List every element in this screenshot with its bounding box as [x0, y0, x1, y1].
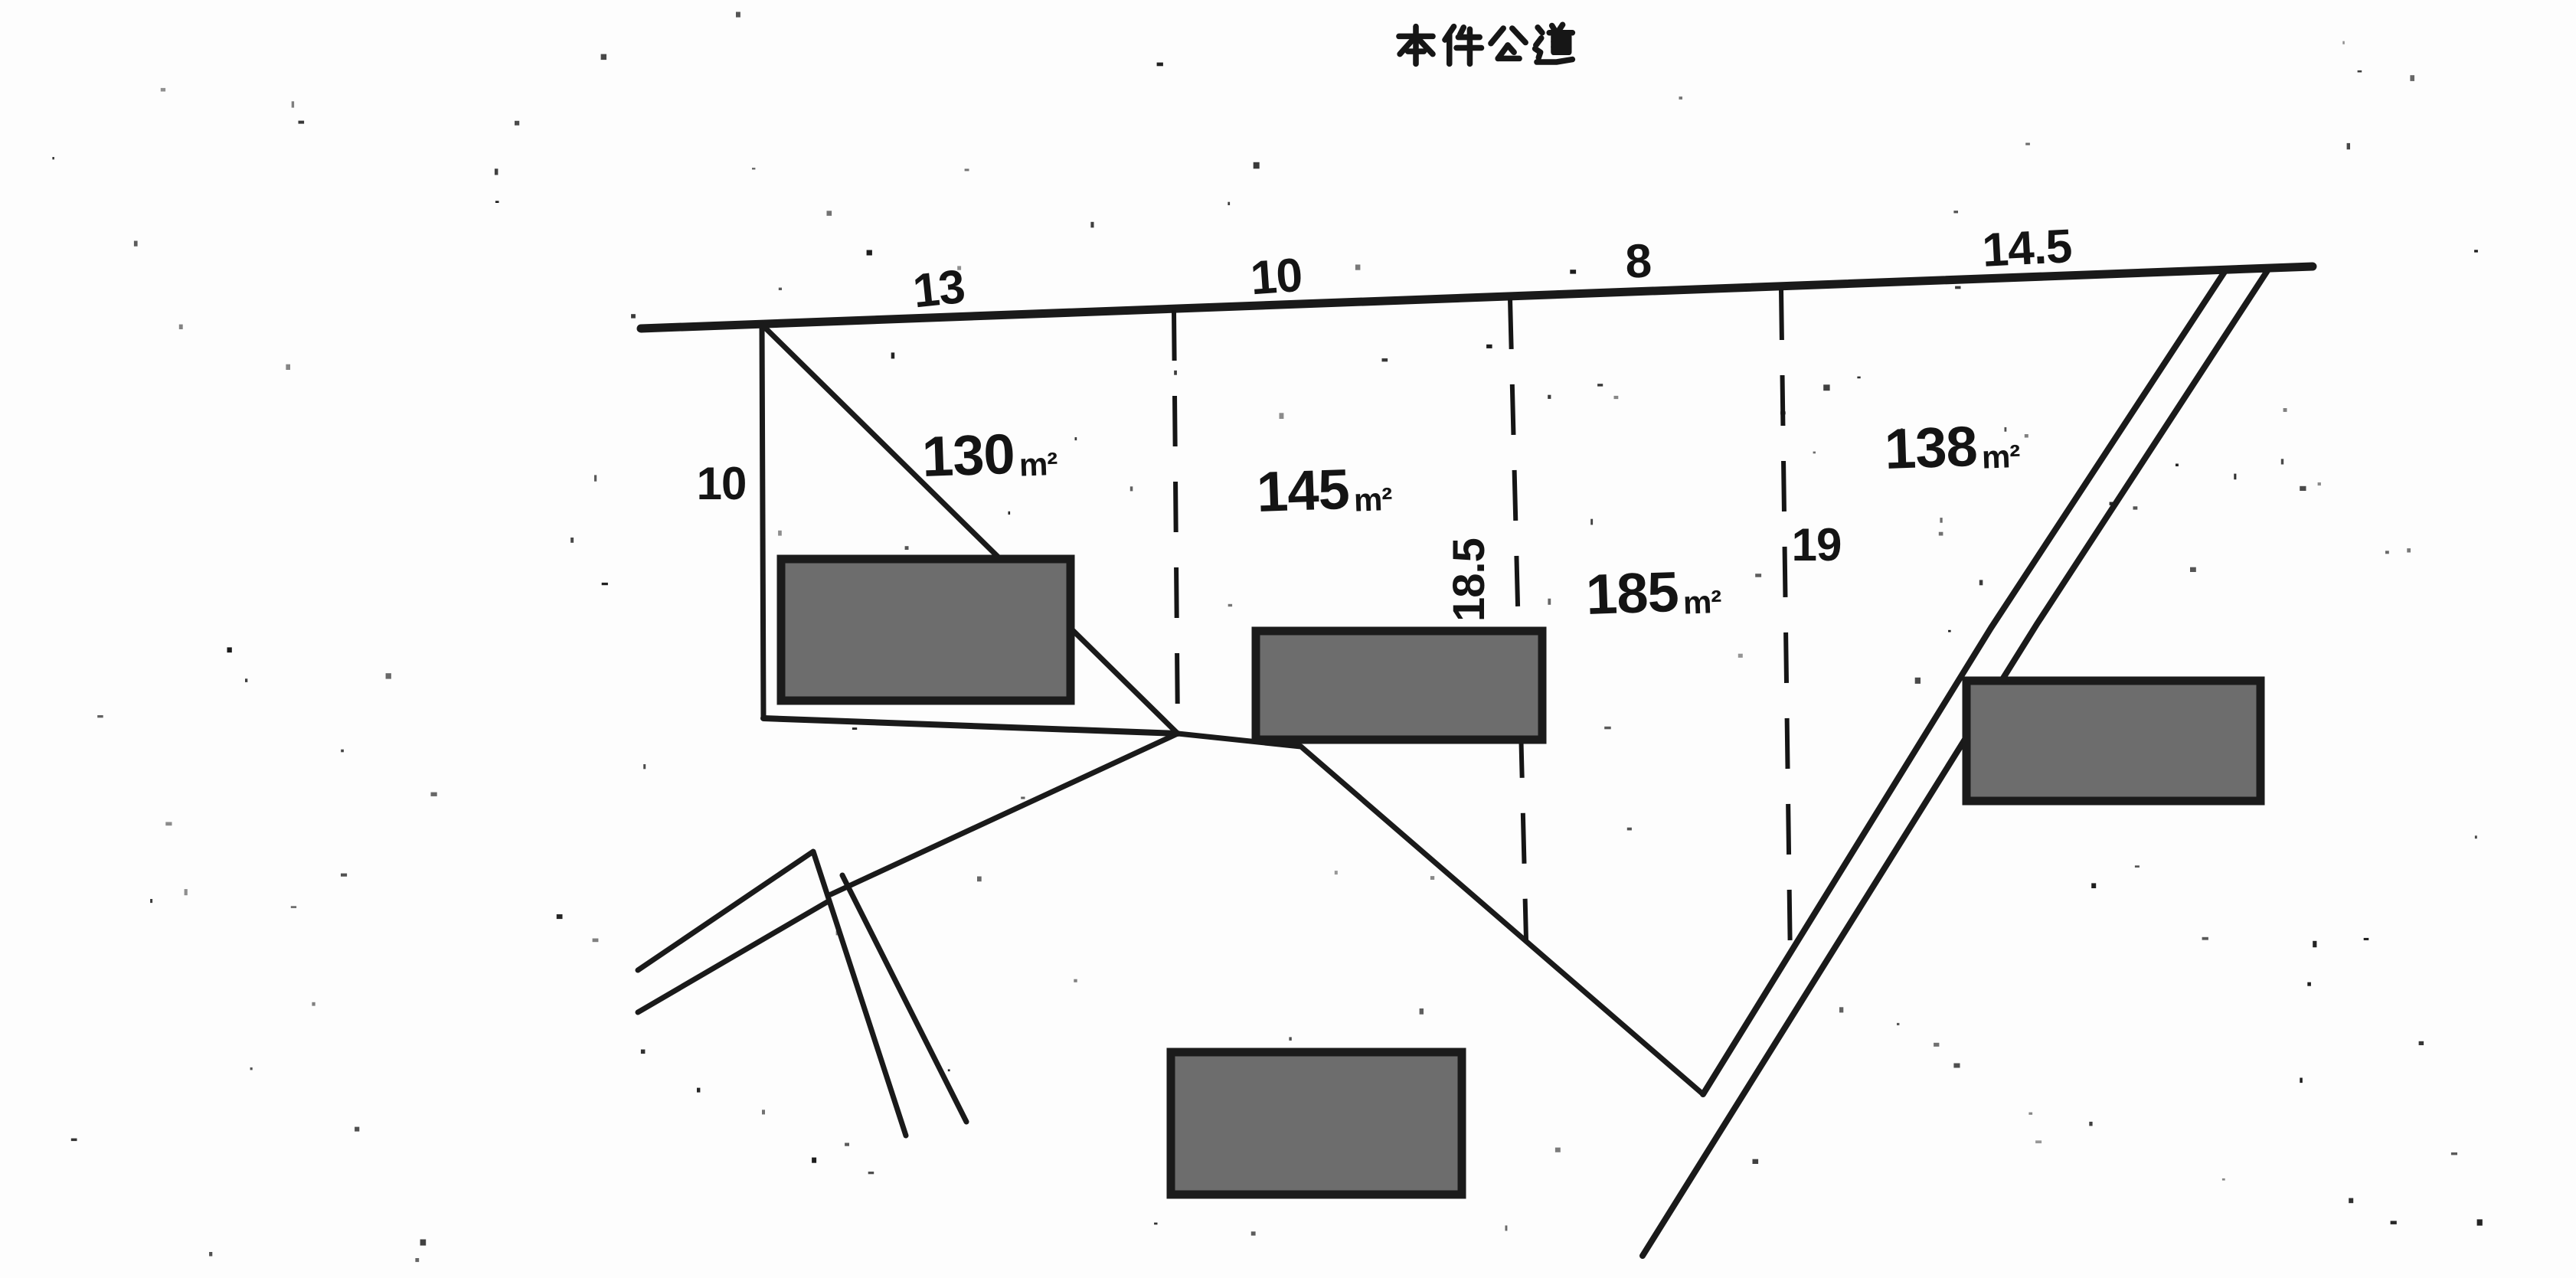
- label-area-130: 130m²: [921, 420, 1059, 489]
- area-value-130: 130: [921, 422, 1015, 489]
- redaction-boxes: [781, 559, 2261, 1195]
- area-value-138: 138: [1884, 414, 1978, 481]
- noise-dot: [1597, 384, 1603, 386]
- noise-dot: [2190, 567, 2196, 572]
- label-left-edge-10: 10: [697, 458, 747, 509]
- noise-dot: [1955, 286, 1960, 289]
- noise-dot: [1289, 1037, 1291, 1041]
- noise-dot: [965, 168, 969, 171]
- noise-dot: [1254, 162, 1260, 169]
- noise-dot: [1355, 265, 1361, 270]
- west-road-upper-line: [638, 851, 906, 1136]
- noise-dot: [1979, 580, 1983, 585]
- noise-dot: [2176, 464, 2179, 467]
- noise-dot: [250, 1067, 253, 1070]
- noise-dot: [1430, 876, 1434, 880]
- noise-dot: [2202, 937, 2208, 940]
- noise-dot: [1280, 413, 1284, 419]
- noise-dot: [1251, 1231, 1256, 1235]
- noise-dot: [1008, 512, 1011, 515]
- noise-dot: [1857, 377, 1860, 379]
- noise-dot: [1953, 211, 1958, 213]
- noise-dot: [1090, 222, 1093, 228]
- noise-dot: [2358, 70, 2362, 73]
- noise-dot: [1813, 452, 1816, 454]
- noise-dot: [570, 538, 574, 543]
- divider-145-185: [1510, 299, 1526, 940]
- noise-dot: [2385, 551, 2389, 554]
- noise-dot: [1074, 979, 1077, 982]
- noise-dot: [1130, 486, 1133, 491]
- noise-dot: [1897, 1023, 1899, 1025]
- noise-dot: [1755, 574, 1761, 577]
- noise-dot: [420, 1240, 427, 1246]
- area-unit-185: m²: [1682, 583, 1722, 621]
- noise-dot: [1940, 518, 1942, 523]
- noise-dot: [641, 1050, 646, 1054]
- noise-dot: [812, 1158, 816, 1163]
- noise-dot: [291, 906, 296, 908]
- noise-dot: [1934, 1043, 1939, 1047]
- noise-dot: [341, 874, 347, 877]
- divider-185-138: [1781, 289, 1790, 964]
- noise-dot: [1548, 599, 1551, 605]
- noise-dot: [1075, 437, 1077, 440]
- label-top-edge-8: 8: [1624, 234, 1652, 288]
- label-area-185: 185m²: [1585, 558, 1723, 626]
- noise-dot: [2419, 1041, 2424, 1045]
- area-value-145: 145: [1256, 457, 1350, 524]
- noise-dot: [2391, 1221, 2397, 1224]
- noise-dot: [1555, 1148, 1561, 1152]
- noise-dot: [245, 678, 247, 682]
- noise-dot: [868, 1172, 874, 1174]
- noise-dot: [2300, 486, 2306, 491]
- noise-dot: [845, 1143, 849, 1146]
- noise-dot: [557, 914, 563, 919]
- noise-dot: [2349, 1198, 2353, 1204]
- noise-dot: [1157, 63, 1163, 67]
- noise-dot: [2133, 506, 2138, 509]
- noise-dot: [1627, 828, 1632, 831]
- noise-dot: [1154, 1223, 1157, 1225]
- noise-dot: [2475, 835, 2477, 838]
- noise-dot: [415, 1258, 419, 1262]
- noise-dot: [2222, 1178, 2225, 1181]
- noise-dot: [312, 1002, 315, 1006]
- noise-dot: [977, 877, 982, 882]
- public-road-boundary-line: [641, 266, 2313, 328]
- parcel1-left-boundary: [762, 325, 763, 718]
- noise-dot: [867, 250, 872, 256]
- label-divider-18-5: 18.5: [1444, 538, 1494, 622]
- noise-dot: [852, 727, 857, 730]
- noise-dot: [1915, 678, 1921, 684]
- scanned-survey-page: 13 10 8 14.5 10 18.5 19 130m² 145m² 185m…: [0, 0, 2576, 1278]
- area-value-185: 185: [1585, 560, 1679, 626]
- noise-dot: [1948, 630, 1951, 632]
- noise-dot: [2028, 1113, 2032, 1115]
- noise-dot: [2281, 459, 2283, 464]
- noise-dot: [2089, 1122, 2092, 1126]
- noise-dot: [1590, 519, 1593, 525]
- noise-dot: [2410, 75, 2414, 81]
- label-top-edge-13: 13: [910, 260, 967, 319]
- southwest-diagonal-boundary: [831, 734, 1178, 894]
- noise-dot: [1174, 371, 1177, 375]
- noise-dot: [2307, 982, 2311, 986]
- noise-dot: [948, 1069, 950, 1071]
- noise-dot: [2474, 250, 2478, 252]
- south-diagonal-boundary: [1178, 734, 1703, 1094]
- label-top-edge-14-5: 14.5: [1981, 220, 2073, 277]
- noise-dot: [631, 314, 636, 318]
- noise-dot: [1953, 1064, 1960, 1068]
- noise-dot: [179, 325, 183, 329]
- area-unit-130: m²: [1018, 446, 1058, 483]
- noise-dot: [697, 1088, 700, 1093]
- noise-dot: [2364, 938, 2369, 940]
- noise-dot: [762, 1110, 765, 1114]
- noise-dot: [2091, 883, 2096, 888]
- noise-dot: [2135, 865, 2140, 868]
- redaction-box-south: [1171, 1052, 1462, 1195]
- page-title-kanji: 本件公道: [1394, 21, 1572, 71]
- noise-dot: [150, 899, 152, 903]
- label-divider-19: 19: [1792, 519, 1842, 570]
- noise-dot: [1823, 384, 1829, 391]
- noise-dot: [386, 673, 391, 678]
- noise-dot: [97, 715, 103, 717]
- noise-dot: [515, 121, 519, 126]
- noise-dot: [431, 793, 437, 796]
- noise-dot: [2025, 143, 2030, 145]
- noise-dot: [1228, 202, 1230, 205]
- noise-dot: [891, 352, 895, 358]
- noise-dot: [1335, 871, 1338, 874]
- redaction-box-parcel-145: [1256, 631, 1542, 740]
- noise-dot: [341, 750, 344, 753]
- noise-dot: [2283, 408, 2287, 412]
- noise-dot: [299, 121, 305, 124]
- noise-dot: [2342, 41, 2345, 44]
- noise-dot: [1382, 358, 1388, 361]
- noise-dot: [779, 288, 782, 290]
- noise-dot: [134, 241, 138, 247]
- parcel1-bottom-boundary: [763, 718, 1178, 734]
- noise-dot: [52, 157, 54, 159]
- label-top-edge-10: 10: [1249, 249, 1304, 306]
- noise-dot: [1228, 604, 1232, 606]
- survey-sketch: 13 10 8 14.5 10 18.5 19 130m² 145m² 185m…: [0, 0, 2576, 1278]
- noise-dot: [1486, 345, 1492, 348]
- noise-dot: [185, 889, 188, 895]
- noise-dot: [593, 939, 599, 943]
- noise-dot: [286, 364, 290, 370]
- noise-dot: [161, 88, 165, 92]
- noise-dot: [827, 211, 832, 216]
- noise-dot: [643, 764, 646, 769]
- noise-dot: [601, 54, 606, 60]
- noise-dot: [1420, 1008, 1424, 1015]
- noise-dot: [905, 546, 909, 550]
- noise-dot: [1021, 797, 1025, 799]
- noise-dot: [1753, 1159, 1759, 1164]
- noise-dot: [2025, 434, 2028, 438]
- noise-dot: [1604, 727, 1611, 730]
- west-road-lower-line: [638, 902, 827, 1012]
- noise-dot: [2318, 482, 2321, 485]
- noise-dot: [495, 201, 499, 203]
- noise-dot: [227, 647, 232, 652]
- noise-dot: [1839, 1007, 1843, 1012]
- noise-dot: [2300, 1078, 2303, 1084]
- noise-dot: [2347, 143, 2350, 149]
- noise-dot: [1505, 1225, 1508, 1231]
- noise-dot: [602, 583, 608, 585]
- noise-dot: [736, 12, 740, 18]
- label-area-138: 138m²: [1884, 413, 2022, 481]
- redaction-box-parcel-138: [1966, 681, 2261, 801]
- noise-dot: [1548, 395, 1551, 399]
- noise-dot: [752, 168, 755, 170]
- noise-dot: [495, 168, 499, 175]
- noise-dot: [355, 1127, 359, 1132]
- area-unit-145: m²: [1353, 481, 1393, 518]
- noise-dot: [292, 101, 294, 107]
- noise-dot: [1570, 270, 1576, 273]
- noise-dot: [1738, 654, 1743, 658]
- noise-dot: [209, 1252, 212, 1257]
- noise-dot: [2005, 427, 2007, 432]
- noise-dot: [1614, 396, 1619, 399]
- noise-dot: [2313, 941, 2316, 947]
- noise-dot: [2035, 1140, 2042, 1143]
- noise-dot: [778, 531, 782, 536]
- noise-dot: [71, 1139, 77, 1142]
- noise-dot: [165, 822, 172, 826]
- noise-dot: [2451, 1152, 2457, 1155]
- noise-dot: [2477, 1219, 2483, 1225]
- noise-dot: [2234, 474, 2236, 480]
- noise-dot: [2407, 548, 2411, 552]
- area-unit-138: m²: [1981, 438, 2021, 476]
- redaction-box-parcel-130: [781, 559, 1071, 701]
- noise-dot: [594, 475, 597, 481]
- noise-dot: [1679, 96, 1683, 100]
- noise-dot: [1939, 532, 1943, 536]
- label-area-145: 145m²: [1256, 456, 1394, 524]
